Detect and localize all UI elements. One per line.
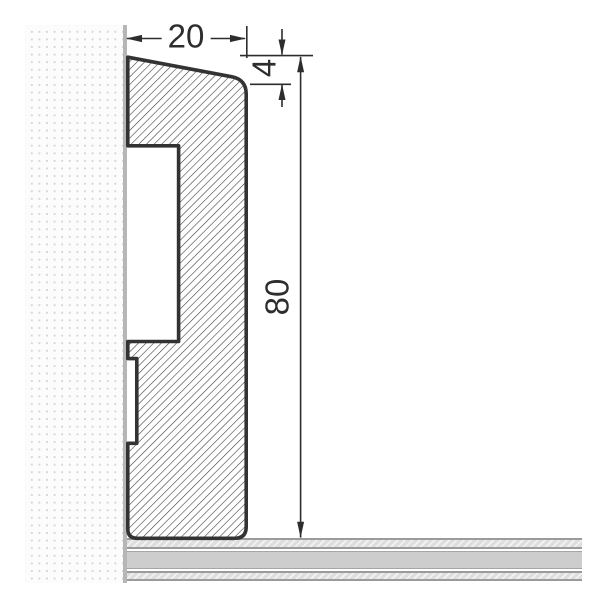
height-arrow-down [297, 522, 304, 538]
width-dimension-label: 20 [162, 20, 211, 53]
profile-and-dimensions-svg [0, 0, 604, 604]
height-dimension-label: 80 [261, 279, 294, 316]
bevel-arrow-up [279, 84, 286, 100]
drawing-canvas: 20 4 80 [0, 0, 604, 604]
bevel-dimension-label: 4 [248, 59, 281, 77]
width-arrow-right [230, 35, 246, 42]
bevel-arrow-down [279, 40, 286, 56]
height-arrow-up [297, 56, 304, 72]
width-arrow-left [126, 35, 142, 42]
skirting-profile-outline [128, 57, 246, 538]
